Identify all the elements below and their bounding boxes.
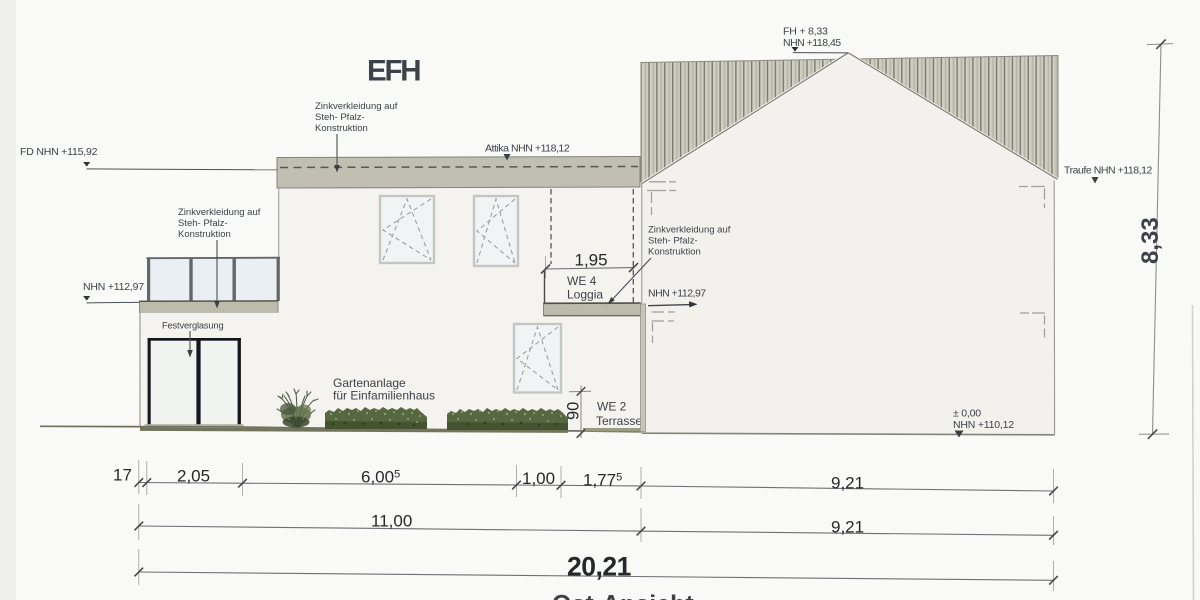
svg-text:Zinkverkleidung auf: Zinkverkleidung auf [648,225,731,236]
svg-text:Attika NHN +118,12: Attika NHN +118,12 [485,143,570,155]
svg-text:Steh- Pfalz-: Steh- Pfalz- [178,218,228,229]
svg-text:Konstruktion: Konstruktion [315,123,368,134]
svg-text:1,95: 1,95 [575,251,608,270]
svg-text:FD NHN +115,92: FD NHN +115,92 [20,146,98,158]
svg-text:Konstruktion: Konstruktion [178,229,231,240]
svg-text:Zinkverkleidung auf: Zinkverkleidung auf [315,101,398,112]
svg-text:Traufe NHN +118,12: Traufe NHN +118,12 [1064,165,1153,177]
svg-text:Festverglasung: Festverglasung [162,321,223,331]
svg-text:17: 17 [113,466,132,485]
svg-text:8,33: 8,33 [1137,217,1164,264]
svg-text:Terrasse: Terrasse [596,414,642,428]
svg-text:9,21: 9,21 [831,518,864,537]
svg-text:11,00: 11,00 [371,512,412,531]
svg-text:90: 90 [565,402,583,420]
svg-text:WE 4: WE 4 [567,274,597,288]
svg-text:FH + 8,33: FH + 8,33 [783,26,828,38]
svg-text:± 0,00: ± 0,00 [953,408,981,420]
svg-text:für Einfamilienhaus: für Einfamilienhaus [333,389,435,403]
svg-text:2,05: 2,05 [177,467,210,486]
svg-text:Ost-Ansicht: Ost-Ansicht [552,591,694,600]
svg-text:Loggia: Loggia [567,288,603,302]
svg-text:EFH: EFH [367,55,420,88]
svg-text:NHN +112,97: NHN +112,97 [648,288,706,300]
svg-text:9,21: 9,21 [831,474,864,493]
svg-text:WE 2: WE 2 [597,400,627,414]
svg-text:Konstruktion: Konstruktion [648,247,701,258]
svg-text:Zinkverkleidung auf: Zinkverkleidung auf [178,207,261,218]
svg-text:20,21: 20,21 [567,552,631,582]
svg-text:Steh- Pfalz-: Steh- Pfalz- [315,112,365,123]
svg-text:NHN +112,97: NHN +112,97 [83,281,144,293]
svg-text:1,00: 1,00 [522,469,555,488]
svg-text:NHN +110,12: NHN +110,12 [953,419,1014,431]
svg-text:Steh- Pfalz-: Steh- Pfalz- [648,236,698,247]
